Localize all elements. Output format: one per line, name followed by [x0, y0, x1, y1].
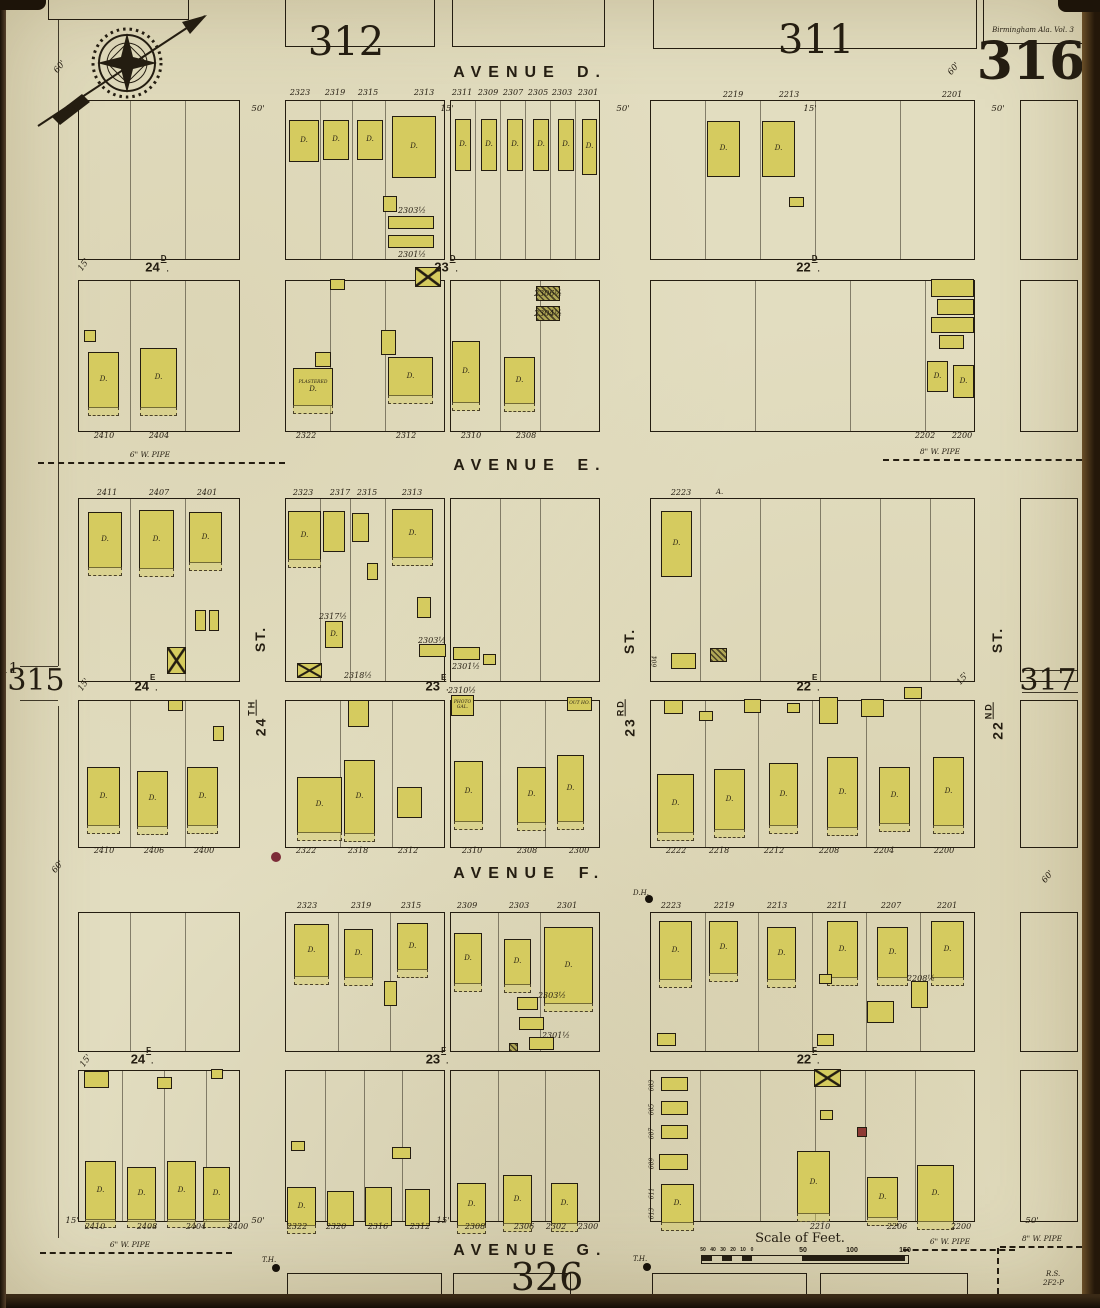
lot-line: [500, 280, 501, 432]
house-number: 2311: [452, 88, 472, 97]
house-number: 609: [649, 1158, 656, 1169]
building-label: D.: [715, 770, 744, 829]
house-number: 2303½: [538, 991, 566, 1000]
building: D.: [452, 341, 480, 403]
alley-label: 24D.: [145, 259, 168, 274]
lot-line: [130, 100, 131, 260]
building: [381, 330, 396, 355]
house-number: 2303½: [418, 636, 446, 645]
scale-bar-segment: [722, 1256, 732, 1261]
lot-line: [130, 912, 131, 1052]
building: D.: [455, 119, 471, 171]
house-number: 2410: [94, 431, 114, 440]
house-number: 2301½: [452, 662, 480, 671]
lot-line: [500, 498, 501, 682]
building-label: D.: [88, 768, 119, 825]
building-label: D.: [393, 510, 432, 557]
lot-line: [338, 912, 339, 1052]
building: [509, 1043, 518, 1052]
dimension-label: 15': [440, 104, 453, 114]
building: [297, 663, 322, 678]
water-pipe-line: [1000, 1246, 1082, 1248]
lot-line: [500, 700, 501, 848]
lot-line: [915, 1070, 916, 1222]
lot-line: [185, 912, 186, 1052]
building: D.: [767, 927, 796, 980]
building: [367, 563, 378, 580]
building: D.: [879, 767, 910, 824]
building: [699, 711, 713, 721]
house-number: 2410: [85, 1222, 105, 1231]
building-label: D.: [954, 366, 973, 397]
building: [291, 1141, 305, 1151]
house-number: 604: [652, 656, 659, 667]
alley-label: 22D.: [796, 259, 819, 274]
building: D.: [707, 121, 740, 177]
lot-line: [385, 100, 386, 260]
page-edge-bottom: [0, 1294, 1100, 1308]
building: [861, 699, 884, 717]
house-number: 2306: [514, 1222, 534, 1231]
dimension-label: 50': [1025, 1216, 1038, 1226]
house-number: 611: [649, 1188, 656, 1199]
building: D.: [827, 921, 858, 978]
building: D.: [397, 923, 428, 970]
house-number: 2219: [714, 901, 734, 910]
lot-line: [130, 498, 131, 682]
building: [419, 644, 446, 657]
building: OUT HO.: [567, 697, 592, 711]
lot-line: [385, 498, 386, 682]
building: [661, 1101, 688, 1115]
building: [517, 997, 538, 1010]
building-label: D.: [934, 758, 963, 825]
building-label: D.: [298, 778, 341, 832]
house-number: 2308: [465, 1222, 485, 1231]
lot-line: [525, 100, 526, 260]
building-label: D.: [508, 120, 522, 170]
margin-line: [58, 20, 59, 666]
building: D.: [325, 621, 343, 648]
building: [383, 196, 397, 212]
building-label: D.: [456, 120, 470, 170]
building: [397, 787, 422, 818]
house-number: 2303: [509, 901, 529, 910]
scale-bar-segment: [852, 1256, 905, 1261]
house-number: 2406: [144, 846, 164, 855]
city-block: [1020, 280, 1078, 432]
building: D.: [140, 348, 177, 408]
house-number: 2315: [358, 88, 378, 97]
water-pipe-label: 6" W. PIPE: [130, 450, 170, 459]
house-number: 2207: [881, 901, 901, 910]
scale-bar-segment: [702, 1256, 712, 1261]
building: D.: [709, 921, 738, 974]
building-label: D.: [763, 122, 794, 176]
building: [904, 687, 922, 699]
house-number: 2322: [296, 846, 316, 855]
building: D.: [917, 1165, 954, 1222]
scale-label: 150: [899, 1247, 911, 1254]
house-number: 2201: [942, 90, 962, 99]
scale-label: 40: [710, 1247, 716, 1253]
building-label: D.: [662, 512, 691, 576]
building: D.: [877, 927, 908, 978]
lot-line: [498, 912, 499, 1052]
city-block: [650, 498, 975, 682]
building: D.: [533, 119, 549, 171]
house-number: 2201: [937, 901, 957, 910]
lot-line: [475, 100, 476, 260]
building: D.: [504, 939, 531, 985]
scale-label: 20: [730, 1247, 736, 1253]
scale-title: Scale of Feet.: [755, 1231, 845, 1246]
house-number: 607: [649, 1128, 656, 1139]
house-number: 2312: [410, 1222, 430, 1231]
building: [661, 1125, 688, 1139]
lot-line: [760, 498, 761, 682]
house-number: 2317½: [319, 612, 347, 621]
annotation: 2F2-P: [1043, 1279, 1064, 1287]
lot-line: [350, 498, 351, 682]
building: D.: [933, 757, 964, 826]
building: PHOTOGAL.: [451, 695, 474, 716]
house-number: 2315: [357, 488, 377, 497]
house-number: 2322: [287, 1222, 307, 1231]
dimension-label: 15': [436, 1216, 449, 1226]
building-label: D.: [86, 1162, 115, 1219]
building-label: D.: [393, 117, 435, 177]
building-label: D.: [398, 924, 427, 969]
city-block: [1020, 1070, 1078, 1222]
building: [857, 1127, 867, 1137]
house-number: 2323: [297, 901, 317, 910]
building: D.: [167, 1161, 196, 1220]
building: D.: [88, 512, 122, 568]
building: D.: [661, 1184, 694, 1223]
building: D.: [454, 933, 482, 984]
building-label: D.: [89, 353, 118, 407]
lot-line: [122, 1070, 123, 1222]
building-label: D.: [868, 1178, 897, 1217]
house-number: 2312: [396, 431, 416, 440]
annotation-dot: [272, 1264, 280, 1272]
house-number: 2315: [401, 901, 421, 910]
lot-line: [812, 912, 813, 1052]
avenue-label: AVENUE: [453, 1242, 561, 1260]
building: [817, 1034, 834, 1046]
building: D.: [392, 116, 436, 178]
building: [931, 317, 974, 333]
lot-line: [812, 700, 813, 848]
building: [787, 703, 800, 713]
alley-label: 23E.: [425, 678, 448, 693]
building-label: D.: [770, 764, 797, 825]
house-number: 2318½: [344, 671, 372, 680]
building: [911, 981, 928, 1008]
building: D.: [294, 924, 329, 977]
building: [315, 352, 331, 367]
water-pipe-label: 8" W. PIPE: [920, 447, 960, 456]
house-number: 2407: [149, 488, 169, 497]
street-label: ST.: [252, 626, 268, 652]
building-label: D.: [190, 513, 221, 562]
lot-line: [930, 498, 931, 682]
building-label: D.: [141, 349, 176, 407]
house-number: 2223: [671, 488, 691, 497]
house-number: 2300: [578, 1222, 598, 1231]
building: [519, 1017, 544, 1030]
house-number: 2408: [137, 1222, 157, 1231]
house-number: 2212: [764, 846, 784, 855]
adjacent-sheet-box: [48, 0, 189, 20]
building: [84, 330, 96, 342]
annotation-dot: [645, 895, 653, 903]
street-label: ST.: [989, 627, 1005, 653]
building-label: D.: [534, 120, 548, 170]
house-number: 2308: [516, 431, 536, 440]
building-label: D.: [204, 1168, 229, 1219]
map-content: 312 311 Birmingham Ala. Vol. 3 316 315 3…: [0, 0, 1100, 1308]
house-number: 2301½: [542, 1031, 570, 1040]
lot-line: [540, 280, 541, 432]
house-number: 2308: [517, 846, 537, 855]
building-label: D.: [505, 358, 534, 403]
scale-bar-segment: [752, 1256, 802, 1261]
house-number: 2319: [351, 901, 371, 910]
building-label: D.: [878, 928, 907, 977]
house-number: 2223: [661, 901, 681, 910]
lot-line: [130, 280, 131, 432]
annotation-dot: [643, 1263, 651, 1271]
building-label: D.: [880, 768, 909, 823]
building: [213, 726, 224, 741]
dimension-label: 60': [946, 61, 962, 78]
annotation: R.S.: [1046, 1270, 1060, 1278]
street-label: 22ND: [989, 702, 1006, 740]
building: [405, 1189, 430, 1226]
building: [814, 1069, 841, 1087]
house-number: 2300: [569, 846, 589, 855]
building-label: D.: [552, 1184, 577, 1223]
house-number: 2400: [194, 846, 214, 855]
building-label: D.: [658, 775, 693, 832]
building: D.: [289, 120, 319, 162]
building: D.: [714, 769, 745, 830]
lot-line: [185, 100, 186, 260]
city-block: [650, 100, 975, 260]
dimension-label: 50': [616, 104, 629, 114]
building-label: D.: [140, 511, 173, 568]
building: [352, 513, 369, 542]
city-block: [78, 912, 240, 1052]
alley-label: 23F.: [426, 1051, 449, 1066]
building: [820, 1110, 833, 1120]
house-number: 2200: [951, 1222, 971, 1231]
street-label: 24TH: [252, 700, 269, 737]
dimension-label: 15': [65, 104, 78, 114]
lot-line: [500, 100, 501, 260]
building: D.: [189, 512, 222, 563]
lot-line: [705, 100, 706, 260]
lot-line: [164, 1070, 165, 1222]
building: [931, 279, 974, 297]
building-label: D.: [188, 768, 217, 825]
lot-line: [920, 700, 921, 848]
city-block: [1020, 912, 1078, 1052]
house-number: 2211: [827, 901, 847, 910]
house-number: 2213: [779, 90, 799, 99]
building: D.: [357, 120, 383, 160]
building: D.: [558, 119, 574, 171]
building: [819, 697, 838, 724]
lot-line: [402, 1070, 403, 1222]
building: D.: [762, 121, 795, 177]
dimension-label: 15': [78, 1053, 94, 1070]
house-number: 2206: [887, 1222, 907, 1231]
building-label: D.: [558, 756, 583, 821]
lot-line: [865, 1070, 866, 1222]
building: D.: [344, 760, 375, 834]
building: D.: [203, 1167, 230, 1220]
house-number: 2318: [348, 846, 368, 855]
building-label: D.: [660, 922, 691, 979]
building: [453, 647, 480, 660]
building: D.: [503, 1175, 532, 1224]
annotation-dot: [271, 852, 281, 862]
lot-line: [185, 280, 186, 432]
building-label: D.: [290, 121, 318, 161]
building: [657, 1033, 676, 1046]
lot-line: [325, 1070, 326, 1222]
building-label: PLASTEREDD.: [294, 369, 332, 405]
building-label: D.: [345, 761, 374, 833]
lot-line: [550, 100, 551, 260]
building: [330, 279, 345, 290]
dimension-label: 60': [1040, 869, 1056, 886]
street-label: 23RD: [621, 699, 638, 737]
margin-line: [1022, 670, 1078, 671]
building-label: D.: [453, 342, 479, 402]
alley-label: 23D.: [434, 259, 457, 274]
building: [168, 700, 183, 711]
building: D.: [797, 1151, 830, 1214]
house-number: 2319: [325, 88, 345, 97]
building: [659, 1154, 688, 1170]
house-number: 2312: [398, 846, 418, 855]
building: D.: [392, 509, 433, 558]
building-label: D.: [708, 122, 739, 176]
house-number: 2309: [478, 88, 498, 97]
building: D.: [457, 1183, 486, 1226]
lot-line: [130, 700, 131, 848]
scale-label: 50: [700, 1247, 706, 1253]
lot-line: [900, 100, 901, 260]
house-number: 2410: [94, 846, 114, 855]
building: [483, 654, 496, 665]
water-pipe-line: [38, 462, 285, 464]
house-number: 2307: [503, 88, 523, 97]
house-number: 2210: [810, 1222, 830, 1231]
house-number: 2222: [666, 846, 686, 855]
water-pipe-line: [40, 1252, 232, 1254]
adjacent-sheet-box: [653, 0, 977, 49]
building: D.: [287, 1187, 316, 1226]
building: D.: [504, 357, 535, 404]
avenue-label: AVENUE: [453, 457, 561, 475]
building: [348, 700, 369, 727]
lot-line: [755, 280, 756, 432]
dimension-label: 50': [251, 104, 264, 114]
lot-line: [760, 1070, 761, 1222]
lot-line: [575, 100, 576, 260]
sanborn-map-sheet: 312 311 Birmingham Ala. Vol. 3 316 315 3…: [0, 0, 1100, 1308]
city-block: [1020, 100, 1078, 260]
lot-line: [758, 912, 759, 1052]
building-label: D.: [798, 1152, 829, 1213]
lot-line: [880, 498, 881, 682]
house-number: 2303: [552, 88, 572, 97]
building: [664, 700, 683, 714]
scale-bar-segment: [802, 1256, 852, 1261]
building: D.: [953, 365, 974, 398]
building: PLASTEREDD.: [293, 368, 333, 406]
lot-line: [820, 498, 821, 682]
building: D.: [557, 755, 584, 822]
building: [384, 981, 397, 1006]
building: D.: [454, 761, 483, 822]
building: D.: [323, 120, 349, 160]
house-number: 2200: [934, 846, 954, 855]
scale-label: 0: [751, 1247, 754, 1253]
alley-label: 24F.: [131, 1051, 154, 1066]
avenue-label: G.: [577, 1242, 608, 1260]
alley-label: 22F.: [797, 1051, 820, 1066]
annotation: T.H.: [633, 1255, 647, 1263]
city-block: [78, 100, 240, 260]
building-label: D.: [89, 513, 121, 567]
avenue-label: F.: [579, 865, 605, 883]
house-number: 2302: [546, 1222, 566, 1231]
building: D.: [297, 777, 342, 833]
building-label: D.: [710, 922, 737, 973]
building: D.: [88, 352, 119, 408]
building: D.: [551, 1183, 578, 1224]
lot-line: [385, 280, 386, 432]
scale-label: 10: [740, 1247, 746, 1253]
building-label: D.: [458, 1184, 485, 1225]
lot-line: [758, 700, 759, 848]
house-number: 2303½: [398, 206, 426, 215]
building: [867, 1001, 894, 1023]
water-pipe-label: 6" W. PIPE: [110, 1240, 150, 1249]
building: [937, 299, 974, 315]
building-label: D.: [559, 120, 573, 170]
lot-line: [815, 100, 816, 260]
building-label: D.: [932, 922, 963, 977]
page-edge-top-left: [0, 0, 46, 10]
house-number: 2202: [915, 431, 935, 440]
building-label: D.: [828, 758, 857, 827]
building: D.: [827, 757, 858, 828]
building: [819, 974, 832, 984]
building: D.: [661, 511, 692, 577]
alley-label: 22E.: [796, 678, 819, 693]
lot-line: [545, 1070, 546, 1222]
building: [195, 610, 206, 631]
house-number: 603: [649, 1080, 656, 1091]
building-label: D.: [326, 622, 342, 647]
